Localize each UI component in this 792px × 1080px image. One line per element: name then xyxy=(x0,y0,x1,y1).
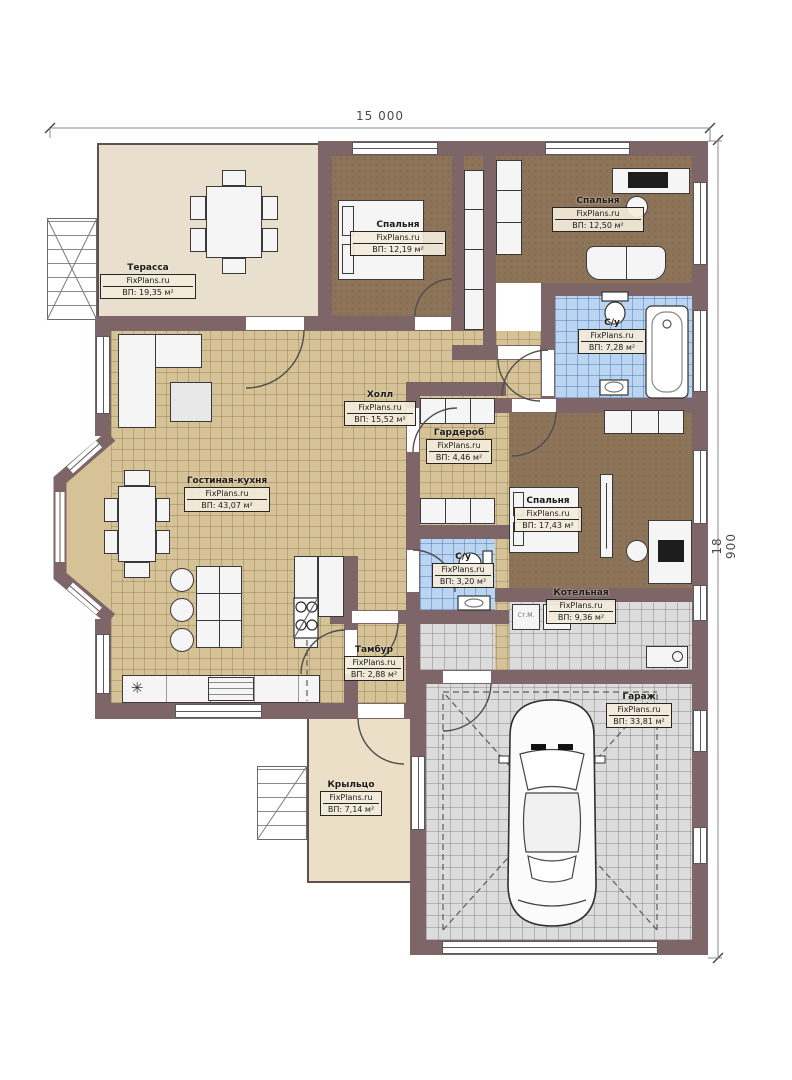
door-opening xyxy=(498,346,540,359)
window xyxy=(96,336,110,414)
room-label-bedroom1: Спальня FixPlans.ru ВП: 12,19 м² xyxy=(350,220,446,256)
wall xyxy=(541,283,692,296)
room-label-terrace: Терасса FixPlans.ru ВП: 19,35 м² xyxy=(100,263,196,299)
chair xyxy=(124,562,150,578)
kitchen-island xyxy=(196,566,242,648)
room-label-bathroom2: С/у FixPlans.ru ВП: 3,20 м² xyxy=(432,552,494,588)
room-area: ВП: 17,43 м² xyxy=(517,519,579,531)
bar-stool xyxy=(170,628,194,652)
room-label-hall: Холл FixPlans.ru ВП: 15,52 м² xyxy=(344,390,416,426)
room-area: ВП: 15,52 м² xyxy=(347,413,413,425)
room-label-garage: Гараж FixPlans.ru ВП: 33,81 м² xyxy=(606,692,672,728)
wardrobe xyxy=(420,398,495,424)
room-info-box: FixPlans.ru ВП: 12,50 м² xyxy=(552,207,644,232)
window xyxy=(545,142,630,155)
watermark: FixPlans.ru xyxy=(581,330,643,341)
window xyxy=(693,827,707,864)
window xyxy=(693,710,707,752)
room-name: Терасса xyxy=(100,263,196,273)
window xyxy=(352,142,438,155)
kitchen-column xyxy=(294,556,318,648)
watermark: FixPlans.ru xyxy=(517,508,579,519)
watermark: FixPlans.ru xyxy=(549,600,613,611)
wall xyxy=(406,382,506,396)
wardrobe xyxy=(496,160,522,255)
room-info-box: FixPlans.ru ВП: 43,07 м² xyxy=(184,487,270,512)
boiler-passage-floor xyxy=(420,624,495,670)
room-label-bathroom1: С/у FixPlans.ru ВП: 7,28 м² xyxy=(578,318,646,354)
chair xyxy=(262,228,278,252)
dimension-width: 15 000 xyxy=(330,109,430,123)
window xyxy=(96,634,110,694)
room-label-boiler: Котельная FixPlans.ru ВП: 9,36 м² xyxy=(546,588,616,624)
bar-stool xyxy=(170,598,194,622)
wall xyxy=(452,156,464,331)
chair xyxy=(156,530,170,554)
room-area: ВП: 12,50 м² xyxy=(555,219,641,231)
room-label-vestibule: Тамбур FixPlans.ru ВП: 2,88 м² xyxy=(344,645,404,681)
room-area: ВП: 19,35 м² xyxy=(103,286,193,298)
chair xyxy=(190,196,206,220)
room-name: Гостиная-кухня xyxy=(184,476,270,486)
room-label-bedroom2: Спальня FixPlans.ru ВП: 12,50 м² xyxy=(552,196,644,232)
boiler-dial xyxy=(672,651,683,662)
room-name: С/у xyxy=(578,318,646,328)
wall xyxy=(318,141,332,316)
window xyxy=(693,310,707,392)
door-opening xyxy=(542,350,554,396)
dimension-height: 18 900 xyxy=(710,524,738,568)
room-info-box: FixPlans.ru ВП: 9,36 м² xyxy=(546,599,616,624)
chair xyxy=(104,530,118,554)
watermark: FixPlans.ru xyxy=(435,564,491,575)
room-area: ВП: 43,07 м² xyxy=(187,499,267,511)
door-opening xyxy=(407,550,419,592)
wardrobe xyxy=(464,170,484,330)
watermark: FixPlans.ru xyxy=(103,275,193,286)
watermark: FixPlans.ru xyxy=(187,488,267,499)
room-label-living-kitchen: Гостиная-кухня FixPlans.ru ВП: 43,07 м² xyxy=(184,476,270,512)
room-info-box: FixPlans.ru ВП: 33,81 м² xyxy=(606,703,672,728)
room-name: Гардероб xyxy=(426,428,492,438)
chair xyxy=(104,498,118,522)
wardrobe xyxy=(604,410,684,434)
room-name: Холл xyxy=(344,390,416,400)
computer-icon xyxy=(628,172,668,188)
room-info-box: FixPlans.ru ВП: 17,43 м² xyxy=(514,507,582,532)
room-info-box: FixPlans.ru ВП: 19,35 м² xyxy=(100,274,196,299)
chair xyxy=(124,470,150,486)
room-area: ВП: 7,14 м² xyxy=(323,803,379,815)
room-name: Котельная xyxy=(546,588,616,598)
door-opening xyxy=(352,611,398,623)
kitchen-drawers xyxy=(208,677,254,701)
room-name: Спальня xyxy=(514,496,582,506)
door-opening xyxy=(415,317,451,330)
chair xyxy=(190,228,206,252)
desk-chair xyxy=(626,540,648,562)
wardrobe xyxy=(420,498,495,524)
sink-icon: ✳ xyxy=(126,679,148,701)
window xyxy=(693,450,707,524)
room-area: ВП: 9,36 м² xyxy=(549,611,613,623)
window xyxy=(693,182,707,265)
mirror-stand xyxy=(600,474,613,558)
wall xyxy=(406,525,509,539)
coffee-table xyxy=(170,382,212,422)
room-name: Спальня xyxy=(350,220,446,230)
window xyxy=(693,585,707,621)
wall xyxy=(406,610,420,719)
fridge xyxy=(318,556,344,617)
room-name: С/у xyxy=(432,552,494,562)
garage-door-opening xyxy=(442,941,658,954)
room-label-wardrobe: Гардероб FixPlans.ru ВП: 4,46 м² xyxy=(426,428,492,464)
chair xyxy=(156,498,170,522)
door-opening xyxy=(358,704,404,718)
room-name: Крыльцо xyxy=(320,780,382,790)
chair xyxy=(222,258,246,274)
sofa xyxy=(586,246,666,280)
corner-sofa xyxy=(118,334,156,428)
room-area: ВП: 4,46 м² xyxy=(429,451,489,463)
window xyxy=(411,756,425,830)
room-area: ВП: 2,88 м² xyxy=(347,668,401,680)
room-label-porch: Крыльцо FixPlans.ru ВП: 7,14 м² xyxy=(320,780,382,816)
room-name: Тамбур xyxy=(344,645,404,655)
room-info-box: FixPlans.ru ВП: 7,28 м² xyxy=(578,329,646,354)
room-area: ВП: 12,19 м² xyxy=(353,243,443,255)
room-info-box: FixPlans.ru ВП: 7,14 м² xyxy=(320,791,382,816)
porch-steps xyxy=(257,766,307,840)
room-label-bedroom3: Спальня FixPlans.ru ВП: 17,43 м² xyxy=(514,496,582,532)
floor-plan: ✳ Ст.М. Ст.М. xyxy=(0,0,792,1080)
bar-stool xyxy=(170,568,194,592)
room-info-box: FixPlans.ru ВП: 12,19 м² xyxy=(350,231,446,256)
watermark: FixPlans.ru xyxy=(555,208,641,219)
door-opening xyxy=(246,317,304,330)
room-info-box: FixPlans.ru ВП: 2,88 м² xyxy=(344,656,404,681)
chair xyxy=(262,196,278,220)
terrace-steps xyxy=(47,218,97,320)
room-info-box: FixPlans.ru ВП: 3,20 м² xyxy=(432,563,494,588)
watermark: FixPlans.ru xyxy=(353,232,443,243)
chair xyxy=(222,170,246,186)
watermark: FixPlans.ru xyxy=(323,792,379,803)
room-info-box: FixPlans.ru ВП: 15,52 м² xyxy=(344,401,416,426)
computer-icon xyxy=(658,540,684,562)
door-opening xyxy=(443,671,491,683)
watermark: FixPlans.ru xyxy=(347,657,401,668)
window xyxy=(175,704,262,718)
wall xyxy=(483,141,496,360)
room-name: Гараж xyxy=(606,692,672,702)
room-area: ВП: 3,20 м² xyxy=(435,575,491,587)
dining-table xyxy=(118,486,156,562)
watermark: FixPlans.ru xyxy=(429,440,489,451)
room-info-box: FixPlans.ru ВП: 4,46 м² xyxy=(426,439,492,464)
washing-machine-label: Ст.М. xyxy=(512,612,540,619)
room-area: ВП: 33,81 м² xyxy=(609,715,669,727)
room-name: Спальня xyxy=(552,196,644,206)
room-area: ВП: 7,28 м² xyxy=(581,341,643,353)
door-opening xyxy=(512,399,556,412)
watermark: FixPlans.ru xyxy=(347,402,413,413)
terrace-table xyxy=(206,186,262,258)
watermark: FixPlans.ru xyxy=(609,704,669,715)
